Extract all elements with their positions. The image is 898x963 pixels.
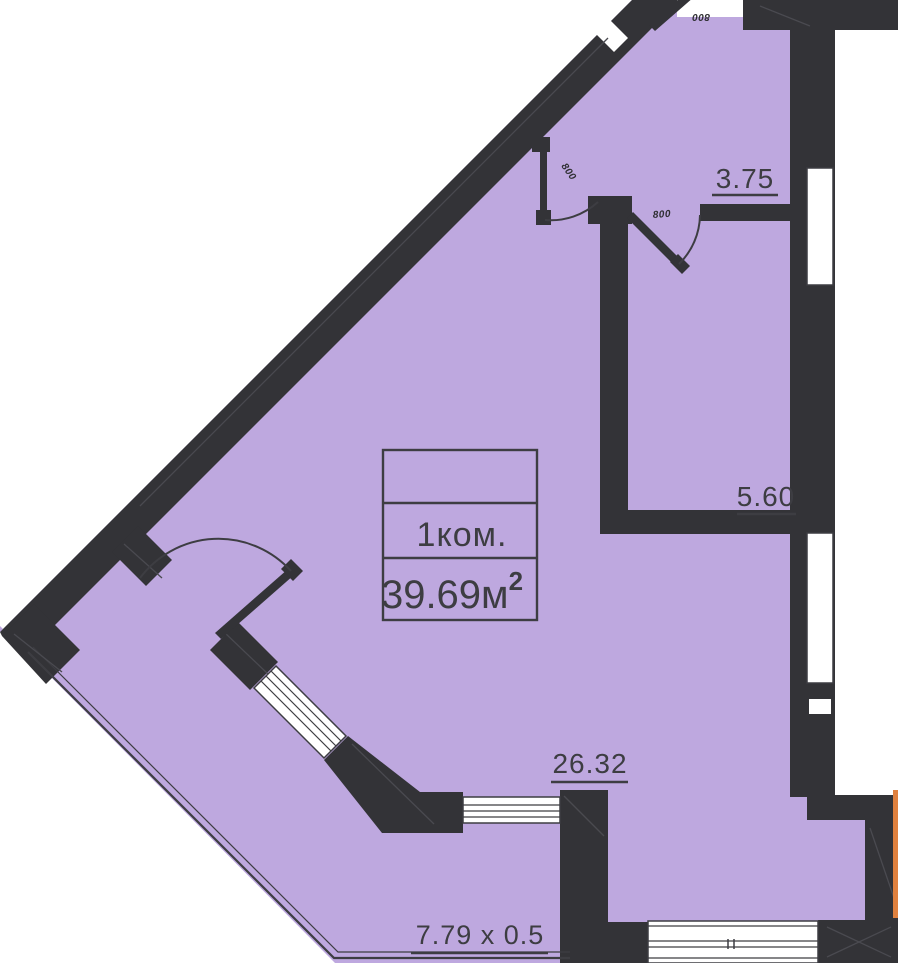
floor-plan-svg: 3.75 5.60 26.32 7.79 x 0.5 800 800 800 1…: [0, 0, 898, 963]
wall-column: [560, 790, 608, 922]
right-window-lower: [807, 533, 833, 683]
right-window-upper: [807, 168, 833, 285]
floor-plan: 3.75 5.60 26.32 7.79 x 0.5 800 800 800 1…: [0, 0, 898, 963]
apartment-area-value: 39.69м: [381, 573, 509, 617]
door-leaf: [540, 149, 547, 221]
bottom-window: [648, 921, 818, 963]
bottom-wall: [560, 922, 648, 963]
apartment-area-superscript: 2: [509, 566, 523, 596]
hall-bath-wall: [700, 204, 807, 221]
apartment-area-label: 39.69м2: [381, 566, 523, 617]
apartment-type-label: 1ком.: [417, 516, 508, 554]
right-wall-niche: [809, 699, 831, 714]
balcony-window-horizontal: [463, 797, 560, 823]
bathroom-area-label: 5.60: [737, 481, 796, 512]
adjacent-section-marker: [893, 790, 898, 918]
bath-left-wall: [600, 219, 628, 515]
bottom-window-frame: [648, 921, 818, 963]
balcony-area-label: 7.79 x 0.5: [416, 920, 545, 950]
entrance-door-width-label: 800: [692, 11, 710, 22]
living-room-area-label: 26.32: [552, 748, 627, 779]
hallway-area-label: 3.75: [716, 163, 775, 194]
hallway-bathroom-door-width-label: 800: [652, 209, 671, 221]
